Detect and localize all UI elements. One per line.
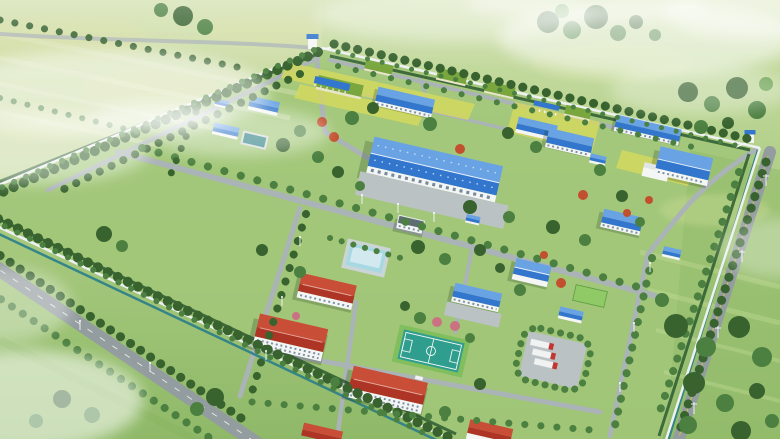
tree — [474, 378, 486, 390]
tree — [579, 234, 591, 246]
autumn-tree — [556, 278, 566, 288]
tree — [190, 402, 204, 416]
tree — [439, 253, 451, 265]
tree — [530, 141, 542, 153]
tree — [256, 244, 268, 256]
pink-tree — [432, 317, 442, 327]
tree — [439, 406, 451, 418]
lamp — [619, 382, 621, 384]
aerial-render — [0, 0, 780, 439]
tree — [206, 388, 224, 406]
lamp — [649, 262, 651, 264]
lamp — [633, 322, 635, 324]
lamp — [299, 236, 301, 238]
tree — [664, 314, 688, 338]
tree — [716, 394, 734, 412]
tree — [330, 377, 340, 387]
tree — [514, 284, 526, 296]
lamp — [265, 350, 267, 352]
lamp — [433, 212, 435, 214]
tree — [414, 312, 426, 324]
tree — [655, 293, 669, 307]
tree — [116, 240, 128, 252]
tree — [96, 226, 112, 242]
tree — [728, 316, 750, 338]
lamp — [281, 296, 283, 298]
tree — [411, 240, 425, 254]
tree — [332, 166, 344, 178]
tree — [594, 164, 606, 176]
autumn-tree — [540, 251, 548, 259]
autumn-tree — [645, 196, 653, 204]
tree — [423, 117, 437, 131]
tree — [616, 190, 628, 202]
tree — [400, 301, 410, 311]
tree — [355, 181, 365, 191]
tree — [502, 127, 514, 139]
tree — [546, 220, 560, 234]
tree — [752, 347, 772, 367]
lamp — [397, 203, 399, 205]
pink-tree — [292, 312, 300, 320]
tree — [679, 416, 697, 434]
tree — [495, 263, 505, 273]
pink-tree — [450, 321, 460, 331]
fog-patch — [90, 103, 230, 133]
tree — [696, 337, 716, 357]
autumn-tree — [329, 132, 339, 142]
tree — [765, 414, 779, 428]
tree — [683, 372, 705, 394]
autumn-tree — [455, 144, 465, 154]
tree — [694, 120, 708, 134]
tree — [474, 244, 486, 256]
lamp — [149, 362, 151, 364]
tree — [345, 111, 359, 125]
tree — [635, 217, 645, 227]
tree — [367, 102, 379, 114]
lamp — [361, 194, 363, 196]
autumn-tree — [623, 209, 631, 217]
gatehouse-roof — [745, 130, 756, 135]
lamp — [79, 320, 81, 322]
top-haze — [0, 0, 780, 70]
tree — [722, 117, 734, 129]
tree — [463, 200, 477, 214]
tree — [749, 383, 765, 399]
render-canvas — [0, 0, 780, 439]
tree — [294, 266, 306, 278]
tree — [465, 333, 475, 343]
autumn-tree — [578, 190, 588, 200]
tree — [503, 211, 515, 223]
tree — [312, 151, 324, 163]
